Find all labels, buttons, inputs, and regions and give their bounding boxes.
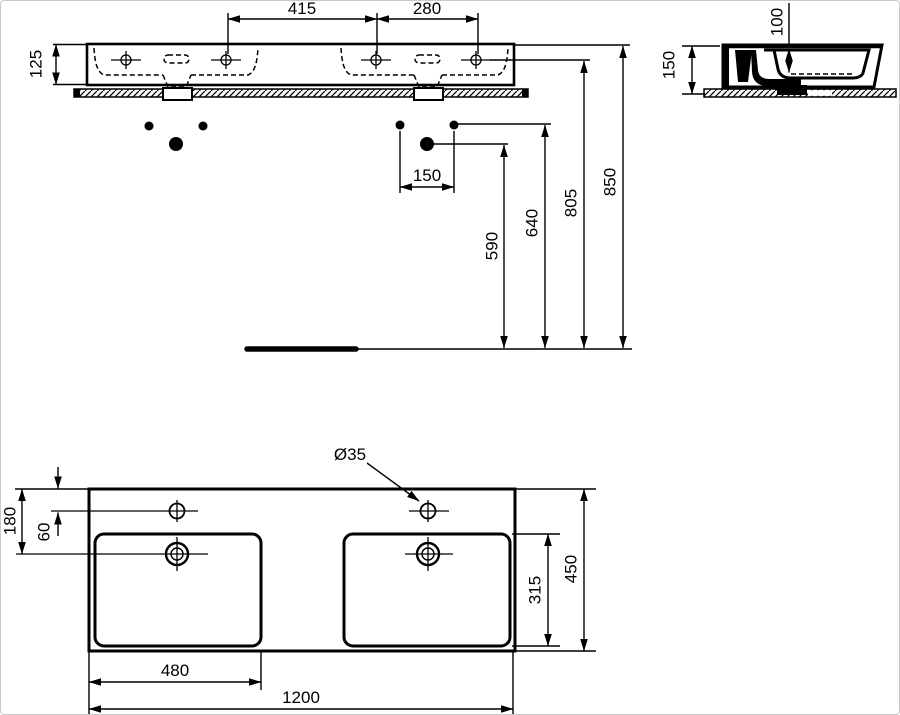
dim-label-315: 315 xyxy=(526,576,545,604)
dim-label-180: 180 xyxy=(1,507,20,535)
dim-label-125: 125 xyxy=(27,50,46,78)
wall-fixing-points xyxy=(145,121,459,152)
dim-side-height: 150 xyxy=(660,46,721,94)
mounting-rail xyxy=(74,88,528,100)
dim-label-150-side: 150 xyxy=(660,51,679,79)
drain-fitting-left xyxy=(163,88,192,100)
dim-label-60: 60 xyxy=(35,523,54,542)
basin-body-front xyxy=(87,44,514,85)
dim-label-640: 640 xyxy=(523,209,542,237)
dim-plan-bottom: 480 1200 xyxy=(89,652,513,715)
dim-label-1200: 1200 xyxy=(282,688,320,707)
plan-bowl-right xyxy=(344,534,510,646)
dim-label-590: 590 xyxy=(483,232,502,260)
drain-fitting-right xyxy=(414,88,443,100)
dim-plan-right: 315 450 xyxy=(512,489,596,651)
dim-label-100: 100 xyxy=(768,8,787,36)
plan-view: Ø35 180 60 315 450 4 xyxy=(1,445,596,715)
front-view: 415 280 125 150 590 640 xyxy=(27,1,633,349)
dim-label-150-front: 150 xyxy=(413,166,441,185)
dim-label-450: 450 xyxy=(562,555,581,583)
technical-drawing-canvas: 415 280 125 150 590 640 xyxy=(0,0,900,715)
plan-bowl-left xyxy=(95,534,261,646)
dim-label-805: 805 xyxy=(562,189,581,217)
washbasin-dimension-drawing: 415 280 125 150 590 640 xyxy=(1,1,900,715)
dim-rim-height-front: 125 xyxy=(27,45,88,85)
dim-label-415: 415 xyxy=(288,1,316,18)
dim-label-850: 850 xyxy=(601,168,620,196)
dim-label-280: 280 xyxy=(413,1,441,18)
dim-label-480: 480 xyxy=(161,661,189,680)
side-view: 150 100 xyxy=(660,3,897,97)
dim-label-dia35: Ø35 xyxy=(334,445,366,464)
